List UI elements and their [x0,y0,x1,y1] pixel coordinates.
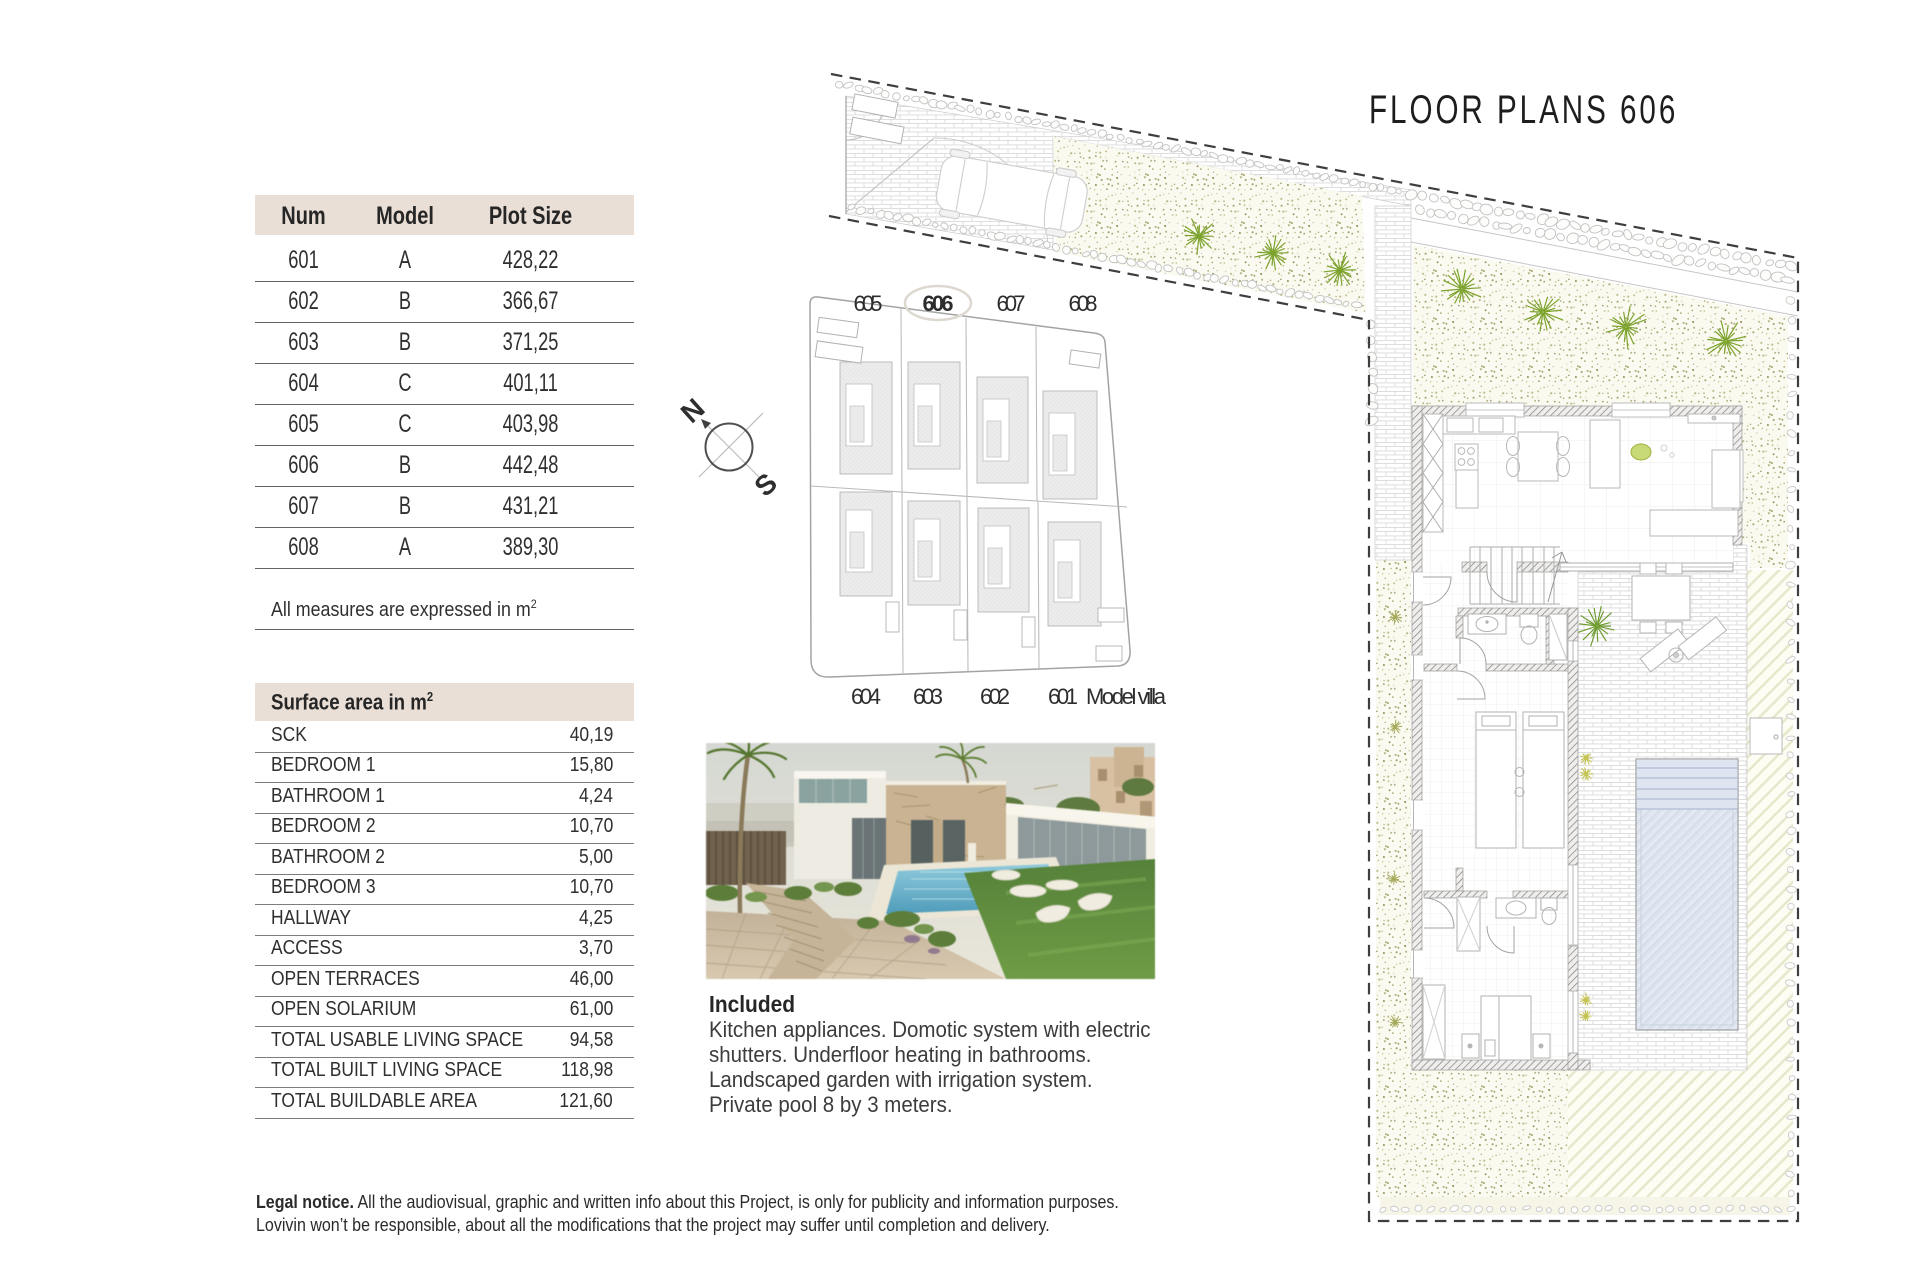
svg-text:606: 606 [923,291,954,316]
svg-text:607: 607 [997,291,1026,316]
svg-text:605: 605 [854,291,883,316]
svg-text:603: 603 [913,684,943,709]
svg-text:608: 608 [1069,291,1098,316]
svg-text:604: 604 [851,684,881,709]
svg-text:601: 601 [1048,684,1078,709]
svg-text:Model villa: Model villa [1086,684,1167,709]
svg-text:602: 602 [980,684,1010,709]
